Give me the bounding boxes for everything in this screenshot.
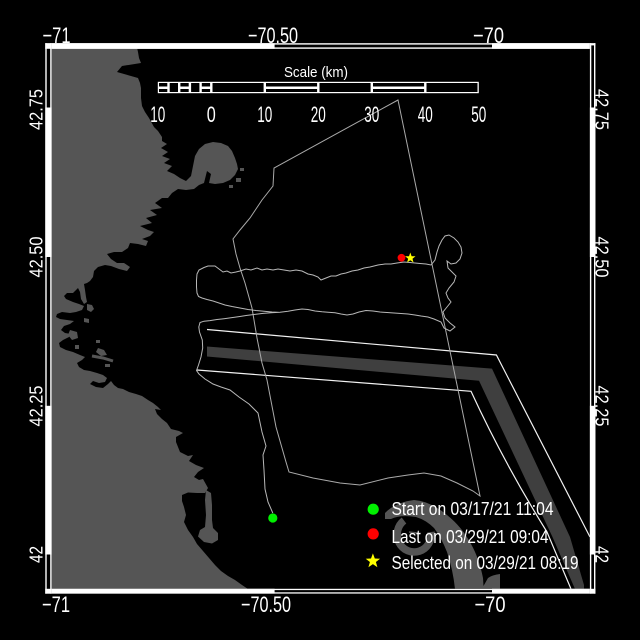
- svg-text:20: 20: [311, 102, 326, 127]
- svg-text:Last on 03/29/21 09:04: Last on 03/29/21 09:04: [392, 527, 549, 547]
- svg-text:−71: −71: [43, 23, 71, 48]
- svg-text:42.75: 42.75: [592, 89, 612, 130]
- svg-text:−71: −71: [42, 592, 70, 617]
- svg-text:42: 42: [27, 546, 47, 563]
- svg-text:42.25: 42.25: [27, 386, 47, 427]
- svg-text:42.75: 42.75: [27, 89, 47, 130]
- svg-text:30: 30: [364, 102, 379, 127]
- svg-text:−70: −70: [475, 592, 506, 617]
- svg-text:Selected on 03/29/21 08:19: Selected on 03/29/21 08:19: [392, 553, 579, 573]
- svg-text:40: 40: [418, 102, 433, 127]
- svg-text:50: 50: [471, 102, 486, 127]
- svg-text:−70.50: −70.50: [248, 23, 298, 48]
- svg-text:42.50: 42.50: [27, 237, 47, 278]
- svg-text:Scale (km): Scale (km): [284, 64, 348, 81]
- svg-text:42.50: 42.50: [592, 237, 612, 278]
- svg-text:−70.50: −70.50: [241, 592, 291, 617]
- svg-text:−70: −70: [473, 23, 504, 48]
- svg-text:42: 42: [592, 546, 612, 563]
- svg-text:42.25: 42.25: [592, 386, 612, 427]
- svg-text:10: 10: [257, 102, 272, 127]
- svg-text:0: 0: [207, 102, 216, 127]
- svg-text:Start on 03/17/21 11:04: Start on 03/17/21 11:04: [392, 499, 554, 519]
- svg-text:10: 10: [150, 102, 165, 127]
